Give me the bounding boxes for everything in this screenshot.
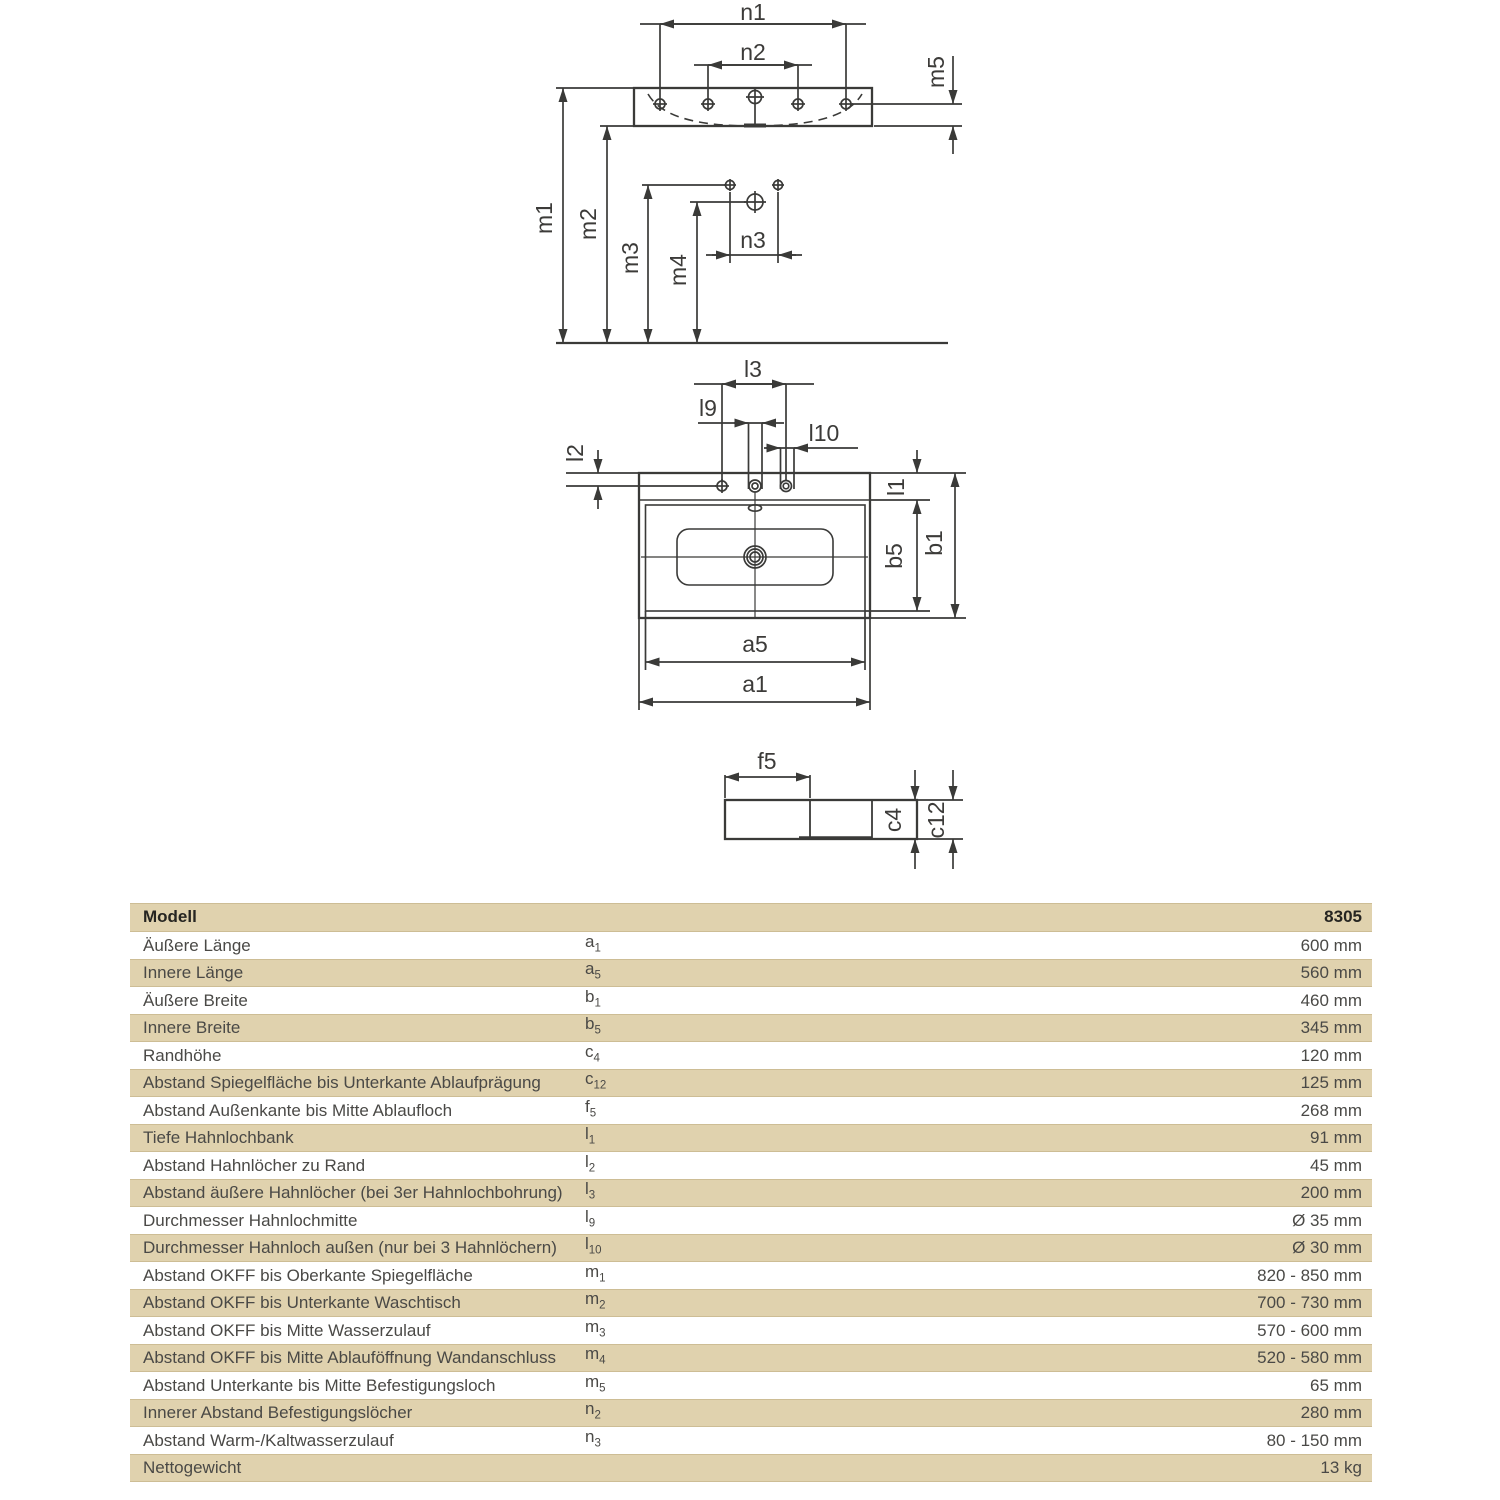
- row-label: Innere Länge: [130, 959, 585, 987]
- row-label: Abstand Unterkante bis Mitte Befestigung…: [130, 1372, 585, 1400]
- dim-label-a1: a1: [742, 671, 768, 697]
- row-label: Äußere Länge: [130, 932, 585, 960]
- dim-label-m4: m4: [665, 254, 691, 286]
- row-value: 80 - 150 mm: [915, 1427, 1372, 1455]
- model-number: 8305: [915, 903, 1372, 932]
- row-value: 120 mm: [915, 1042, 1372, 1070]
- dim-label-n2: n2: [740, 39, 766, 65]
- dim-label-m2: m2: [575, 208, 601, 240]
- row-value: 125 mm: [915, 1069, 1372, 1097]
- dim-label-f5: f5: [757, 748, 776, 774]
- dim-label-l9: l9: [699, 395, 717, 421]
- table-row: Nettogewicht13 kg: [130, 1454, 1372, 1482]
- row-label: Abstand OKFF bis Mitte Ablauföffnung Wan…: [130, 1344, 585, 1372]
- row-value: 700 - 730 mm: [915, 1289, 1372, 1317]
- dim-label-b1: b1: [921, 530, 947, 556]
- row-value: 200 mm: [915, 1179, 1372, 1207]
- row-value: 570 - 600 mm: [915, 1317, 1372, 1345]
- table-body: Äußere Längea1600 mmInnere Längea5560 mm…: [130, 932, 1372, 1482]
- row-value: 520 - 580 mm: [915, 1344, 1372, 1372]
- row-value: 91 mm: [915, 1124, 1372, 1152]
- row-symbol: n3: [585, 1423, 915, 1458]
- row-value: 280 mm: [915, 1399, 1372, 1427]
- dim-label-n3: n3: [740, 227, 766, 253]
- row-value: 13 kg: [915, 1454, 1372, 1482]
- dim-label-c4: c4: [880, 808, 906, 833]
- row-value: Ø 30 mm: [915, 1234, 1372, 1262]
- table-header-label: Modell: [130, 903, 585, 932]
- row-value: 560 mm: [915, 959, 1372, 987]
- row-label: Abstand äußere Hahnlöcher (bei 3er Hahnl…: [130, 1179, 585, 1207]
- dim-label-m3: m3: [617, 242, 643, 274]
- dim-label-c12: c12: [923, 801, 949, 838]
- dim-label-n1: n1: [740, 0, 766, 25]
- dim-label-m5: m5: [923, 56, 949, 88]
- row-value: 268 mm: [915, 1097, 1372, 1125]
- dim-label-l3: l3: [744, 356, 762, 382]
- row-label: Innere Breite: [130, 1014, 585, 1042]
- row-label: Abstand OKFF bis Mitte Wasserzulauf: [130, 1317, 585, 1345]
- dim-label-a5: a5: [742, 631, 768, 657]
- row-label: Abstand Hahnlöcher zu Rand: [130, 1152, 585, 1180]
- row-value: 820 - 850 mm: [915, 1262, 1372, 1290]
- technical-drawing: n1 n2 m5 m1 m2 m3 m4 n3 l3 l9 l10 l2 l1 …: [0, 0, 1500, 900]
- front-view: [556, 24, 962, 343]
- row-label: Abstand Spiegelfläche bis Unterkante Abl…: [130, 1069, 585, 1097]
- row-value: 600 mm: [915, 932, 1372, 960]
- row-value: Ø 35 mm: [915, 1207, 1372, 1235]
- row-value: 345 mm: [915, 1014, 1372, 1042]
- row-value: 45 mm: [915, 1152, 1372, 1180]
- dim-label-l1: l1: [883, 478, 909, 496]
- row-label: Abstand Außenkante bis Mitte Ablaufloch: [130, 1097, 585, 1125]
- row-label: Innerer Abstand Befestigungslöcher: [130, 1399, 585, 1427]
- water-supply-hole: [724, 179, 784, 191]
- dim-label-l2: l2: [562, 444, 588, 462]
- row-value: 65 mm: [915, 1372, 1372, 1400]
- row-label: Abstand Warm-/Kaltwasserzulauf: [130, 1427, 585, 1455]
- row-label: Nettogewicht: [130, 1454, 585, 1482]
- drain-connection-hole: [744, 191, 766, 213]
- basin-front-outline: [634, 88, 872, 126]
- row-label: Durchmesser Hahnloch außen (nur bei 3 Ha…: [130, 1234, 585, 1262]
- row-value: 460 mm: [915, 987, 1372, 1015]
- row-label: Durchmesser Hahnlochmitte: [130, 1207, 585, 1235]
- row-label: Abstand OKFF bis Unterkante Waschtisch: [130, 1289, 585, 1317]
- row-label: Abstand OKFF bis Oberkante Spiegelfläche: [130, 1262, 585, 1290]
- dim-label-b5: b5: [881, 543, 907, 569]
- dim-label-m1: m1: [531, 202, 557, 234]
- row-label: Randhöhe: [130, 1042, 585, 1070]
- dim-label-l10: l10: [809, 420, 840, 446]
- overflow-hole: [746, 89, 764, 126]
- spec-table: Modell 8305 Äußere Längea1600 mmInnere L…: [130, 903, 1372, 1482]
- row-label: Äußere Breite: [130, 987, 585, 1015]
- row-label: Tiefe Hahnlochbank: [130, 1124, 585, 1152]
- table-row: Abstand Warm-/Kaltwasserzulaufn380 - 150…: [130, 1427, 1372, 1455]
